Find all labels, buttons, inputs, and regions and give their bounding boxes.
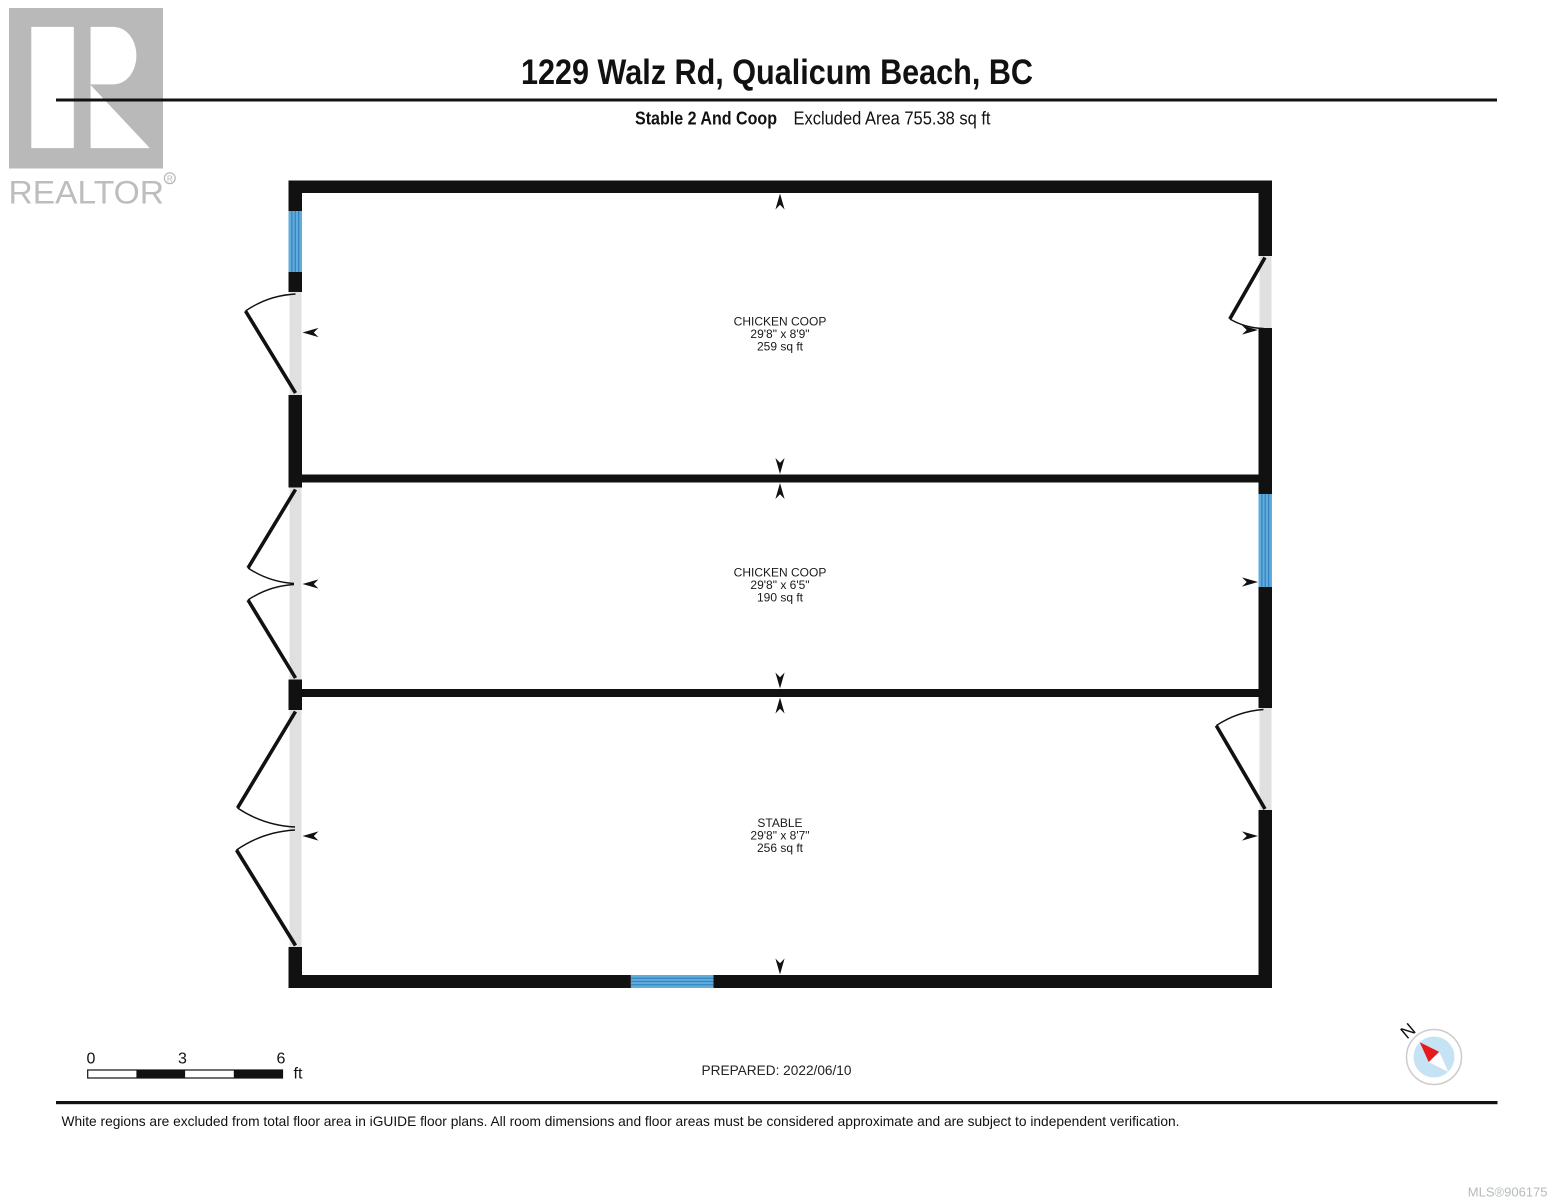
svg-text:259 sq ft: 259 sq ft <box>757 339 804 353</box>
svg-text:PREPARED: 2022/06/10: PREPARED: 2022/06/10 <box>702 1062 852 1078</box>
svg-text:Stable 2 And Coop: Stable 2 And Coop <box>635 109 777 129</box>
svg-text:White regions are excluded fro: White regions are excluded from total fl… <box>62 1113 1180 1129</box>
svg-text:Excluded Area 755.38 sq ft: Excluded Area 755.38 sq ft <box>794 109 991 129</box>
svg-text:256 sq ft: 256 sq ft <box>757 841 804 855</box>
svg-text:3: 3 <box>178 1051 187 1068</box>
svg-text:6: 6 <box>277 1051 286 1068</box>
svg-text:R: R <box>167 174 173 183</box>
svg-text:ft: ft <box>294 1066 303 1083</box>
svg-text:1229 Walz Rd, Qualicum Beach,: 1229 Walz Rd, Qualicum Beach, BC <box>521 53 1033 92</box>
svg-text:190 sq ft: 190 sq ft <box>757 590 804 604</box>
svg-text:REALTOR: REALTOR <box>9 175 165 211</box>
svg-text:MLS®906175: MLS®906175 <box>1468 1185 1548 1200</box>
svg-text:0: 0 <box>87 1051 96 1068</box>
